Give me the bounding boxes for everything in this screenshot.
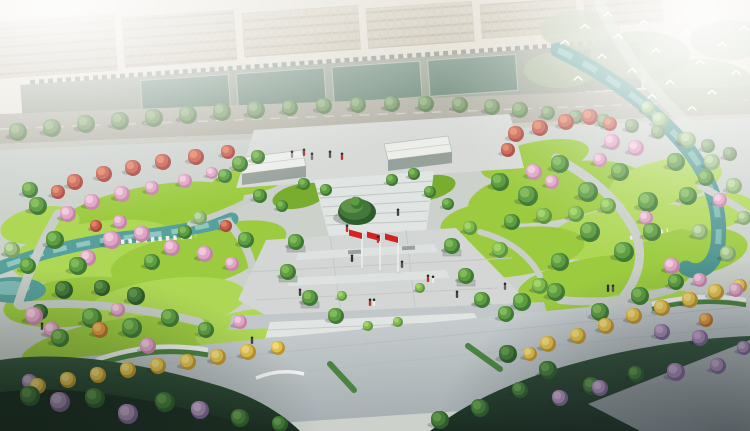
- park-aerial-rendering: [0, 0, 750, 431]
- canopy-highlight: [394, 318, 399, 323]
- pedestrian-body: [369, 301, 371, 306]
- park-aerial-scene: [0, 0, 750, 431]
- pedestrian-body: [373, 301, 375, 306]
- canopy-highlight: [364, 322, 369, 327]
- pedestrian: [373, 299, 376, 307]
- pedestrian-head: [369, 299, 372, 302]
- vignette-bottom-right: [420, 240, 750, 431]
- pedestrian-head: [373, 299, 376, 302]
- pedestrian: [369, 299, 372, 307]
- vignette-bottom-left: [0, 250, 340, 431]
